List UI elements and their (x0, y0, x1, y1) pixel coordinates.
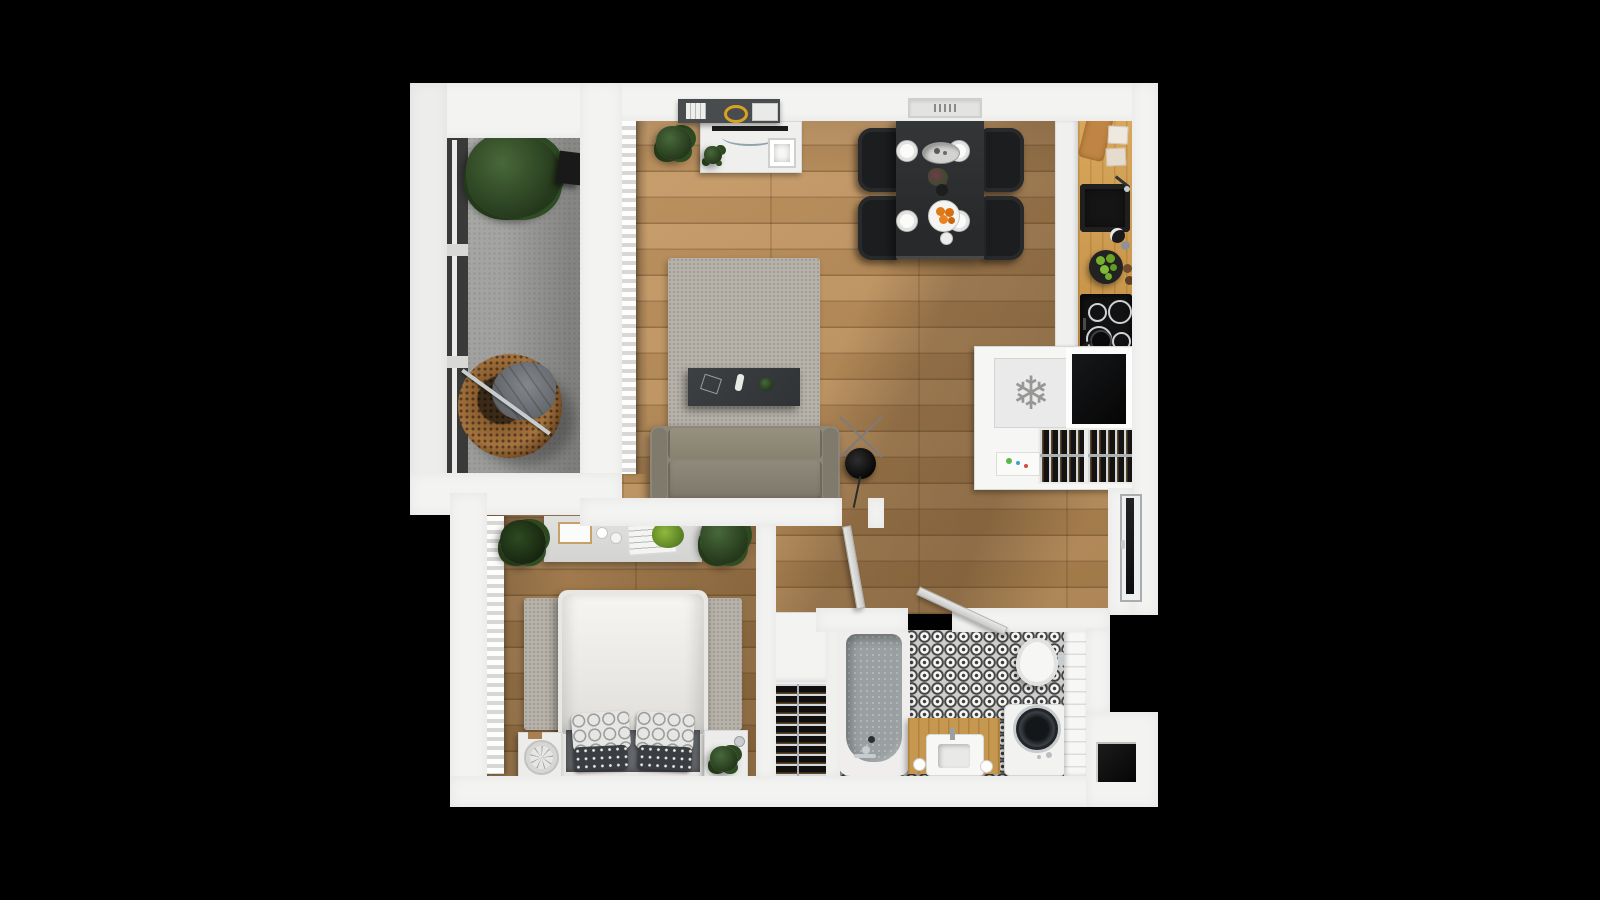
console-picture-frame (768, 138, 796, 168)
hanging-chair-cushion (492, 362, 556, 420)
cooktop-controls (1083, 318, 1086, 330)
nightstand-plant (710, 746, 738, 772)
bathtub-faucet (854, 754, 876, 758)
washing-machine-controls (1046, 752, 1052, 758)
floor-plan-canvas: ❄ (0, 0, 1600, 900)
bathtub-drain (868, 736, 875, 743)
hall-wine-rack (773, 684, 827, 776)
window-mullion-lower (447, 356, 468, 368)
freezer-compartment: ❄ (994, 358, 1068, 428)
wall-bedroom-left (450, 493, 487, 807)
wall-bedroom-right (756, 524, 776, 778)
balcony-window-glass (452, 140, 457, 473)
vanity-basin (938, 744, 970, 768)
oranges (936, 207, 945, 216)
wall-bathroom-top-left (816, 608, 908, 632)
nightstand-left-item (528, 732, 542, 739)
wall-bottom (450, 776, 1110, 807)
burner-2 (1108, 300, 1132, 324)
storage-box-items (1006, 458, 1012, 464)
floor-lamp-shade (845, 448, 876, 479)
wall-bathroom-left (826, 608, 840, 778)
wall-balcony-divider (580, 83, 622, 500)
bathroom-tiled-wall (1064, 630, 1086, 776)
green-apples (1096, 256, 1105, 265)
bedroom-blinds (487, 516, 504, 774)
wall-left-balcony (410, 83, 447, 495)
wine-rack-upper-right (1088, 430, 1132, 482)
vase-flowers (928, 168, 948, 186)
sofa-seat-cushions (668, 460, 822, 502)
vase (936, 184, 948, 196)
coffee-table-plant (760, 378, 773, 391)
kitchen-sink (1080, 184, 1130, 232)
dresser-dish (596, 527, 608, 539)
vanity-tap (950, 728, 955, 740)
window-mullion-upper (447, 244, 468, 256)
storage-boxes (996, 452, 1040, 476)
kiwis (1123, 264, 1132, 273)
pillow-dots-right (637, 745, 692, 772)
sofa-arm-left (652, 428, 667, 502)
sofa-back-cushions (668, 428, 822, 460)
fruit-bowl (1089, 250, 1123, 284)
table-fan (524, 740, 559, 775)
shelf-yellow-item (724, 105, 748, 123)
counter-plate-2 (1106, 147, 1127, 166)
dining-chair-bottom-left (858, 196, 900, 260)
snowflake-icon: ❄ (1012, 370, 1051, 416)
nightstand-knob (734, 736, 745, 747)
dining-chair-top-left (858, 128, 900, 192)
entry-door-panel (1126, 498, 1134, 594)
counter-plate-1 (1108, 125, 1129, 144)
dining-chair-bottom-right (982, 196, 1024, 260)
small-dish (940, 232, 953, 245)
bedroom-plant-left (500, 520, 546, 564)
burner-1 (1088, 303, 1107, 322)
shelf-white-tray (752, 103, 778, 121)
entry-door-handle (1121, 540, 1125, 549)
plant-on-console (704, 146, 722, 164)
living-curtains (622, 121, 636, 474)
shelf-books (686, 103, 706, 119)
wall-bathroom-right (1086, 628, 1110, 714)
sofa-arm-right (823, 428, 838, 502)
plate-bottom-left (896, 210, 918, 232)
bathtub-basin (846, 634, 902, 762)
orange-plate (928, 200, 960, 232)
towel-roll-left (913, 758, 926, 771)
plant-by-tv (656, 126, 692, 160)
balcony-plant (466, 132, 562, 218)
wall-living-bottom (580, 498, 842, 526)
platter-item (934, 148, 940, 154)
wine-rack-upper-left (1040, 430, 1084, 482)
sink-faucet-base (1124, 186, 1130, 192)
dining-chair-top-right (982, 128, 1024, 192)
serving-platter (922, 142, 960, 164)
toilet (1016, 638, 1058, 686)
utility-shaft-recess (1096, 742, 1136, 782)
pillow-dots-left (573, 745, 628, 772)
fridge-open-compartment (1072, 354, 1126, 424)
small-jar (1121, 241, 1130, 250)
dresser-cup (610, 532, 622, 544)
towel-roll-right (980, 760, 993, 773)
wall-door-jamb (868, 498, 884, 528)
bathtub-faucet-knob (862, 746, 870, 754)
plate-top-left (896, 140, 918, 162)
washing-machine-drum (1013, 705, 1061, 753)
vent-grille (934, 104, 958, 112)
kitchen-cabinet-strip (1055, 120, 1079, 348)
